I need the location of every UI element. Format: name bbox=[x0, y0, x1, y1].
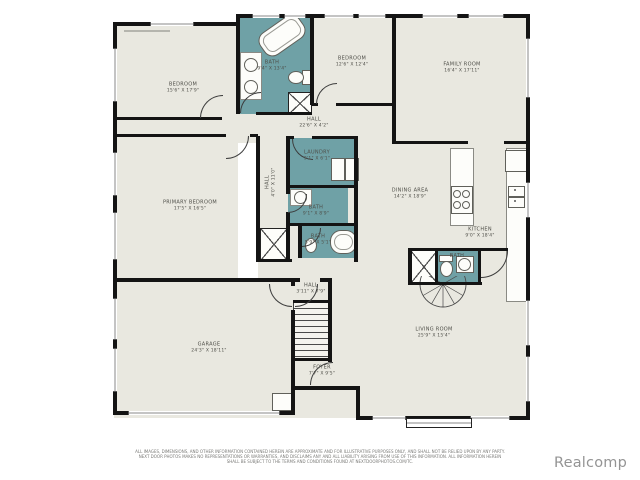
wall bbox=[392, 14, 396, 143]
burner-icon bbox=[462, 201, 470, 209]
room-name: HALL bbox=[299, 117, 328, 123]
sink-icon bbox=[458, 258, 471, 271]
kitchen-sink-icon bbox=[508, 186, 525, 197]
room-name: BATH bbox=[450, 253, 464, 259]
wall bbox=[356, 386, 360, 420]
room-label-hall-vertical: HALL 4'0" X 11'0" bbox=[265, 167, 278, 196]
floor-plan: BEDROOM 15'6" X 17'9" BATH 9'4" X 13'4" … bbox=[0, 0, 640, 480]
room-name: HALL bbox=[296, 283, 325, 289]
wall bbox=[310, 14, 314, 105]
room-dims: 9'1" X 6'1" bbox=[304, 157, 330, 163]
staircase bbox=[293, 303, 330, 358]
kitchen-sink-icon bbox=[508, 197, 525, 208]
window bbox=[526, 356, 530, 402]
wall bbox=[336, 103, 395, 106]
room-label-living-room: LIVING ROOM 25'9" X 15'4" bbox=[415, 327, 452, 340]
window bbox=[372, 416, 406, 420]
window bbox=[468, 14, 504, 18]
room-label-garage: GARAGE 24'3" X 18'11" bbox=[191, 342, 226, 355]
window bbox=[113, 348, 117, 392]
window bbox=[470, 416, 510, 420]
window bbox=[526, 38, 530, 98]
room-name: BEDROOM bbox=[336, 56, 368, 62]
room-label-bath-small: BATH 5'9" X 5'1" bbox=[305, 234, 331, 247]
window bbox=[422, 14, 458, 18]
window bbox=[284, 14, 306, 18]
tub-icon bbox=[330, 230, 357, 254]
room-dims: 15'6" X 17'9" bbox=[167, 89, 199, 95]
room-label-laundry: LAUNDRY 9'1" X 6'1" bbox=[304, 150, 330, 163]
wall bbox=[291, 386, 358, 390]
window bbox=[252, 14, 280, 18]
room-name: BEDROOM bbox=[167, 82, 199, 88]
room-name: KITCHEN bbox=[465, 227, 494, 233]
wall bbox=[256, 136, 260, 262]
room-label-bedroom-1: BEDROOM 15'6" X 17'9" bbox=[167, 82, 199, 95]
door-arc-icon bbox=[226, 136, 249, 159]
window bbox=[150, 22, 194, 26]
wall bbox=[354, 136, 358, 262]
wall bbox=[256, 112, 312, 115]
room-label-hall-top: HALL 22'6" X 4'2" bbox=[299, 117, 328, 130]
room-name: PRIMARY BEDROOM bbox=[163, 200, 217, 206]
wall bbox=[286, 226, 290, 262]
room-name: FOYER bbox=[309, 365, 335, 371]
room-name: GARAGE bbox=[191, 342, 226, 348]
room-label-bath-middle: BATH 9'1" X 8'9" bbox=[303, 205, 329, 218]
room-label-foyer: FOYER 7'7" X 9'5" bbox=[309, 365, 335, 378]
bay-window bbox=[406, 418, 472, 428]
wall bbox=[392, 141, 468, 144]
realcomp-watermark: Realcomp bbox=[554, 455, 627, 471]
wall bbox=[113, 278, 300, 282]
room-name: DINING AREA bbox=[392, 188, 429, 194]
toilet-bowl-icon bbox=[288, 71, 304, 84]
window bbox=[324, 14, 354, 18]
window bbox=[113, 212, 117, 260]
sink-icon bbox=[244, 58, 258, 72]
window bbox=[113, 48, 117, 102]
room-name: LIVING ROOM bbox=[415, 327, 452, 333]
burner-icon bbox=[462, 190, 470, 198]
garage-door bbox=[128, 411, 280, 415]
wall bbox=[312, 136, 358, 139]
toilet-bowl-icon bbox=[440, 261, 453, 277]
floorplan-canvas: BEDROOM 15'6" X 17'9" BATH 9'4" X 13'4" … bbox=[0, 0, 640, 480]
room-dims: 17'5" X 16'5" bbox=[163, 207, 217, 213]
disclaimer-text: ALL IMAGES, DIMENSIONS, AND OTHER INFORM… bbox=[100, 449, 540, 464]
wall bbox=[288, 185, 358, 188]
tub-inner bbox=[334, 234, 353, 250]
window bbox=[113, 298, 117, 340]
room-name: HALL bbox=[265, 167, 271, 196]
wall bbox=[408, 248, 412, 285]
window bbox=[526, 300, 530, 346]
room-dims: 9'4" X 13'4" bbox=[257, 67, 286, 73]
disclaimer-line: SHALL BE SUBJECT TO THE TERMS AND CONDIT… bbox=[100, 459, 540, 464]
room-dims: 24'3" X 18'11" bbox=[191, 349, 226, 355]
washer-icon bbox=[331, 158, 345, 181]
room-dims: 22'6" X 4'2" bbox=[299, 124, 328, 130]
room-label-kitchen: KITCHEN 9'0" X 18'4" bbox=[465, 227, 494, 240]
room-dims: 14'2" X 18'9" bbox=[392, 195, 429, 201]
drain-dot bbox=[514, 189, 516, 191]
room-label-dining-area: DINING AREA 14'2" X 18'9" bbox=[392, 188, 429, 201]
wall bbox=[504, 141, 528, 144]
window bbox=[358, 14, 386, 18]
room-name: BATH bbox=[257, 60, 286, 66]
window bbox=[526, 182, 530, 218]
room-dims: 4'0" X 11'0" bbox=[272, 167, 278, 196]
room-dims: 5'9" X 5'1" bbox=[305, 241, 331, 247]
fridge-icon bbox=[505, 150, 528, 172]
closet-rod-line bbox=[124, 30, 170, 32]
wall bbox=[236, 22, 240, 114]
room-dims: 25'9" X 15'4" bbox=[415, 334, 452, 340]
room-dims: 9'0" X 18'4" bbox=[465, 234, 494, 240]
room-dims: 9'1" X 8'9" bbox=[303, 212, 329, 218]
room-label-bath-living: BATH bbox=[450, 253, 464, 259]
window bbox=[113, 152, 117, 196]
wall bbox=[256, 259, 292, 262]
room-dims: 12'6" X 12'4" bbox=[336, 63, 368, 69]
room-dims: 3'11" X 7'9" bbox=[296, 290, 325, 296]
room-label-bedroom-2: BEDROOM 12'6" X 12'4" bbox=[336, 56, 368, 69]
wall bbox=[114, 134, 226, 137]
drain-dot bbox=[514, 200, 516, 202]
burner-icon bbox=[453, 190, 461, 198]
wall bbox=[293, 358, 328, 361]
room-name: LAUNDRY bbox=[304, 150, 330, 156]
burner-icon bbox=[453, 201, 461, 209]
room-dims: 16'4" X 17'11" bbox=[443, 69, 480, 75]
room-label-family-room: FAMILY ROOM 16'4" X 17'11" bbox=[443, 62, 480, 75]
wall bbox=[408, 282, 482, 285]
room-label-hall-bottom: HALL 3'11" X 7'9" bbox=[296, 283, 325, 296]
room-name: BATH bbox=[303, 205, 329, 211]
room-label-bath-main: BATH 9'4" X 13'4" bbox=[257, 60, 286, 73]
closet-x-box bbox=[260, 228, 288, 261]
wall bbox=[328, 278, 332, 362]
room-name: FAMILY ROOM bbox=[443, 62, 480, 68]
wall bbox=[435, 250, 438, 282]
room-label-primary-bedroom: PRIMARY BEDROOM 17'5" X 16'5" bbox=[163, 200, 217, 213]
room-name: BATH bbox=[305, 234, 331, 240]
room-dims: 7'7" X 9'5" bbox=[309, 372, 335, 378]
room-fill bbox=[114, 22, 238, 280]
